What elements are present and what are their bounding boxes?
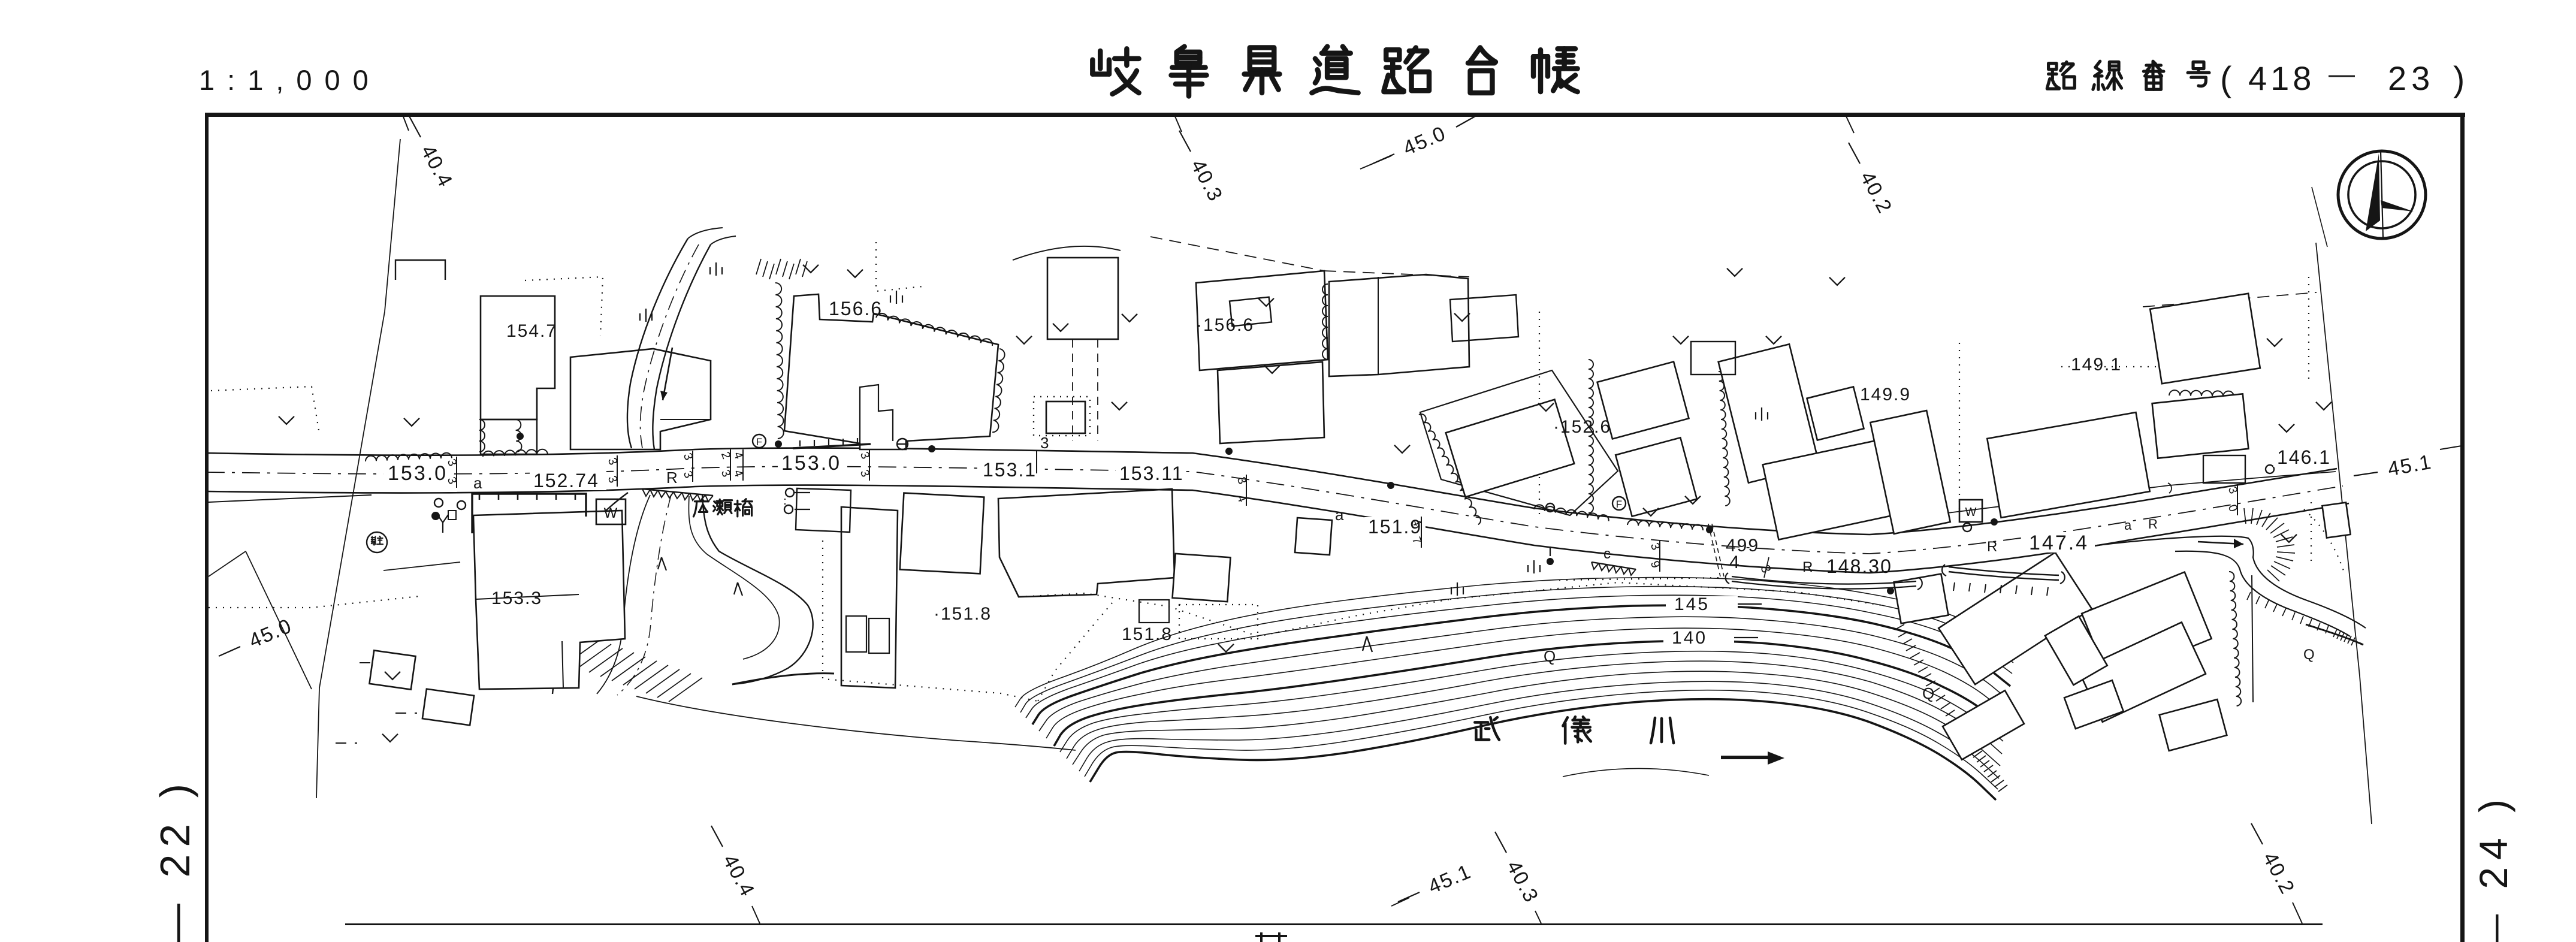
svg-text:F: F — [756, 436, 762, 448]
svg-text:146.1: 146.1 — [2277, 446, 2331, 468]
svg-text:156.6: 156.6 — [829, 298, 883, 319]
svg-text:1:1,000: 1:1,000 — [199, 64, 381, 96]
svg-text:151.8: 151.8 — [1122, 624, 1173, 644]
svg-text:a: a — [1335, 506, 1344, 524]
svg-text:—: — — [2329, 59, 2355, 89]
svg-text:Q: Q — [1922, 684, 1934, 702]
svg-text:F: F — [1616, 499, 1622, 510]
svg-text:153.3: 153.3 — [491, 588, 542, 608]
svg-text:— 22 ): — 22 ) — [152, 777, 198, 942]
svg-text:153.11: 153.11 — [1119, 463, 1184, 484]
svg-text:W: W — [604, 505, 618, 521]
svg-text:418: 418 — [2248, 59, 2315, 97]
svg-text:153.0: 153.0 — [388, 462, 448, 485]
svg-text:R: R — [666, 469, 678, 487]
svg-text:R: R — [1802, 559, 1813, 575]
svg-text:154.7: 154.7 — [506, 321, 557, 341]
svg-text:23: 23 — [2388, 59, 2435, 97]
svg-text:(: ( — [2220, 60, 2231, 99]
svg-text:145: 145 — [1674, 594, 1710, 614]
svg-text:149.9: 149.9 — [1860, 385, 1911, 404]
svg-text:149.1: 149.1 — [2071, 355, 2122, 375]
svg-text:Q: Q — [1544, 647, 1556, 665]
svg-text:153.1: 153.1 — [983, 459, 1037, 481]
svg-text:R: R — [2148, 517, 2158, 532]
svg-text:3: 3 — [1040, 434, 1049, 452]
svg-text:c: c — [1603, 546, 1611, 562]
svg-text:a: a — [473, 474, 482, 492]
svg-text:4: 4 — [1729, 552, 1740, 572]
svg-text:Q: Q — [2303, 647, 2315, 663]
svg-text:R: R — [1987, 539, 1997, 555]
svg-text:a: a — [2124, 518, 2132, 533]
svg-text:153.0: 153.0 — [781, 452, 841, 475]
svg-text:·152.6: ·152.6 — [1553, 417, 1611, 437]
svg-text:152.74: 152.74 — [533, 470, 599, 491]
svg-text:): ) — [2453, 60, 2465, 99]
svg-text:— 24 ): — 24 ) — [2471, 792, 2515, 942]
svg-text:·151.8: ·151.8 — [934, 604, 992, 624]
svg-text:W: W — [1965, 506, 1977, 519]
svg-text:140: 140 — [1672, 628, 1707, 648]
svg-text:148.30: 148.30 — [1826, 555, 1892, 577]
svg-text:147.4: 147.4 — [2029, 532, 2089, 554]
